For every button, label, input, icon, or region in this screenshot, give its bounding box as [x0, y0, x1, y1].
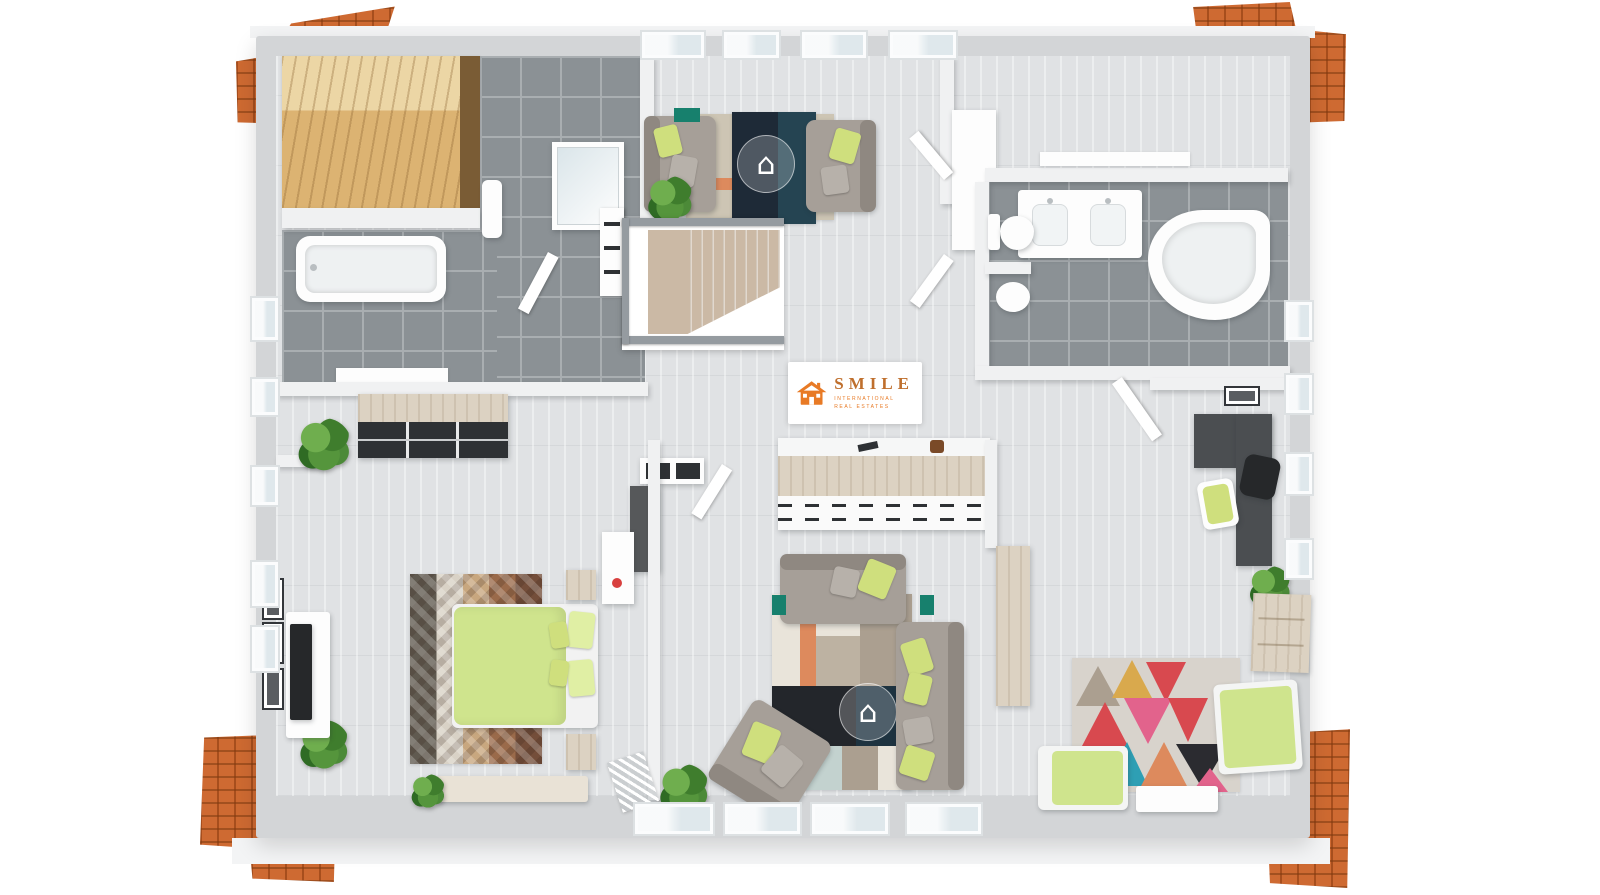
window-top-1 [640, 30, 706, 60]
smile-watermark-card: SMILE INTERNATIONAL REAL ESTATES [788, 362, 922, 424]
rug-triangle [1112, 660, 1152, 698]
guest-chair-seat [1202, 483, 1234, 525]
window-glass [255, 382, 275, 412]
window-glass [815, 807, 885, 831]
brand-subtitle-line1: INTERNATIONAL [834, 396, 894, 402]
divider-shelf-unit [778, 438, 990, 530]
toilet [988, 212, 1036, 252]
window-glass [1289, 305, 1309, 337]
drawer-line [1258, 617, 1304, 621]
pillow [903, 672, 934, 707]
window-glass [910, 807, 978, 831]
window-right-4 [1284, 538, 1314, 580]
window-bottom-4 [905, 802, 983, 836]
bedroom-plant-small [410, 774, 446, 810]
wall-frame [262, 668, 284, 710]
window-right-3 [1284, 452, 1314, 496]
bathtub-basin [305, 245, 437, 293]
staircase-steps [648, 230, 780, 334]
window-left-5 [250, 625, 280, 673]
stair-treads [690, 230, 780, 334]
window-left-4 [250, 560, 280, 608]
toilet-tank [988, 214, 1000, 250]
window-glass [1289, 543, 1309, 575]
se-coffee-table [1136, 786, 1218, 812]
watermark-house-glyph: ⌂ [858, 695, 877, 730]
window-left-2 [250, 377, 280, 417]
bed-bench [436, 776, 588, 802]
window-glass [893, 35, 953, 55]
nightstand-bottom [566, 734, 596, 770]
smile-house-icon [796, 377, 827, 409]
floor-plan-scene: ⌂ [0, 0, 1600, 895]
window-glass [728, 807, 797, 831]
watermark-house-glyph: ⌂ [756, 147, 775, 182]
shelf-slot [604, 270, 620, 274]
window-glass [805, 35, 863, 55]
toilet-bowl [1000, 216, 1034, 250]
brand-name: SMILE [834, 375, 914, 392]
living-side-table [772, 595, 786, 615]
pillow [902, 716, 934, 746]
lounge-side-table [674, 108, 700, 122]
exterior-trim-bottom [232, 838, 1330, 864]
bag-decor [930, 440, 944, 453]
rug-cell [842, 746, 878, 790]
office-wall-picture [1224, 386, 1260, 406]
window-top-4 [888, 30, 958, 60]
window-left-3 [250, 465, 280, 507]
flower-decor [612, 578, 622, 588]
frame-inner [267, 673, 279, 705]
rug-triangle [1146, 662, 1186, 702]
window-glass [645, 35, 701, 55]
hall-plant [296, 418, 352, 474]
lounge-plant [646, 176, 694, 224]
corner-bathtub-basin [1162, 222, 1256, 304]
window-glass [255, 565, 275, 603]
wall-living-right [985, 440, 997, 548]
faucet [1047, 198, 1053, 204]
stairwell [622, 218, 784, 350]
closet-cabinet [602, 532, 634, 604]
window-bottom-3 [810, 802, 890, 836]
bathtub-faucet [310, 264, 317, 271]
window-bottom-1 [633, 802, 715, 836]
shelf-slot [604, 246, 620, 250]
bed-pillow [566, 659, 595, 697]
dresser-slot [676, 463, 700, 479]
bed-accent-pillow [548, 659, 569, 687]
wall-office-top [1150, 378, 1290, 390]
rug-cell [816, 636, 860, 686]
picture-inner [1229, 391, 1255, 401]
pillow [898, 744, 936, 782]
stair-railing-left [622, 218, 629, 344]
bathroom-sink-pedestal [482, 180, 502, 238]
shelf-line [358, 439, 508, 441]
se-daybed-left [1038, 746, 1128, 810]
sofa-backrest [948, 622, 964, 790]
rug-triangle [1124, 698, 1172, 744]
window-right-2 [1284, 373, 1314, 415]
window-glass [727, 35, 776, 55]
bathroom-shelf [1040, 152, 1190, 166]
window-glass [255, 470, 275, 502]
sink-basin [1032, 204, 1068, 246]
slot-row [778, 518, 990, 521]
rug-triangle [1168, 698, 1208, 742]
window-top-2 [722, 30, 781, 60]
divider-top-shelf [778, 438, 990, 456]
tv [290, 624, 312, 720]
window-top-3 [800, 30, 868, 60]
sauna-glass-front [460, 56, 480, 208]
se-dresser [1251, 593, 1312, 673]
pillow [820, 164, 850, 195]
daybed-cushion [1219, 686, 1296, 769]
brand-subtitle: INTERNATIONAL REAL ESTATES [834, 395, 914, 411]
tall-cabinet [996, 546, 1030, 706]
double-vanity [1018, 190, 1142, 258]
bed-pillow [566, 611, 596, 650]
bed-accent-pillow [548, 621, 569, 649]
rug-watermark-lounge: ⌂ [737, 135, 795, 193]
bathtub [296, 236, 446, 302]
living-sofa-top [780, 554, 906, 624]
se-daybed-right [1213, 679, 1303, 775]
bidet [996, 282, 1030, 312]
logo-text-block: SMILE INTERNATIONAL REAL ESTATES [834, 375, 914, 411]
window-glass [1289, 378, 1309, 410]
window-glass [255, 630, 275, 668]
window-bottom-2 [723, 802, 802, 836]
wall-bathroom-right-left [975, 182, 989, 372]
stair-railing-top [622, 218, 784, 226]
rug-triangle [1082, 702, 1128, 746]
daybed-cushion [1052, 751, 1123, 805]
shelf-slot [604, 222, 620, 226]
stair-railing-bottom [622, 336, 784, 344]
wall-bathroom-right-top [985, 168, 1288, 182]
sofa-backrest [860, 120, 876, 212]
pillow [899, 637, 934, 677]
towel-shelf-wall [600, 208, 624, 296]
nightstand-top [566, 570, 596, 600]
rug-watermark-living: ⌂ [839, 683, 897, 741]
living-side-table [920, 595, 934, 615]
wall-bedroom-right [648, 440, 660, 800]
pillow [828, 127, 862, 165]
divider-slots [778, 496, 990, 530]
pillow [829, 566, 860, 599]
window-glass [255, 301, 275, 337]
bed [452, 604, 598, 728]
brand-subtitle-line2: REAL ESTATES [834, 404, 890, 410]
lounge-sofa-right [806, 120, 876, 212]
sideboard-shelves [358, 422, 508, 458]
wall-toilet-stub [985, 262, 1031, 274]
divider-wood-band [778, 456, 990, 496]
slot-row [778, 504, 990, 507]
sauna [282, 56, 480, 208]
window-left-1 [250, 296, 280, 342]
hall-sideboard [358, 394, 508, 458]
drawer-line [1258, 643, 1304, 647]
sink-basin [1090, 204, 1126, 246]
faucet [1105, 198, 1111, 204]
window-right-1 [1284, 300, 1314, 342]
rug-triangle [1076, 666, 1120, 706]
sideboard-top [358, 394, 508, 422]
sauna-front-wall [282, 208, 480, 228]
window-glass [1289, 457, 1309, 491]
living-sofa-right [896, 622, 964, 790]
window-glass [638, 807, 710, 831]
